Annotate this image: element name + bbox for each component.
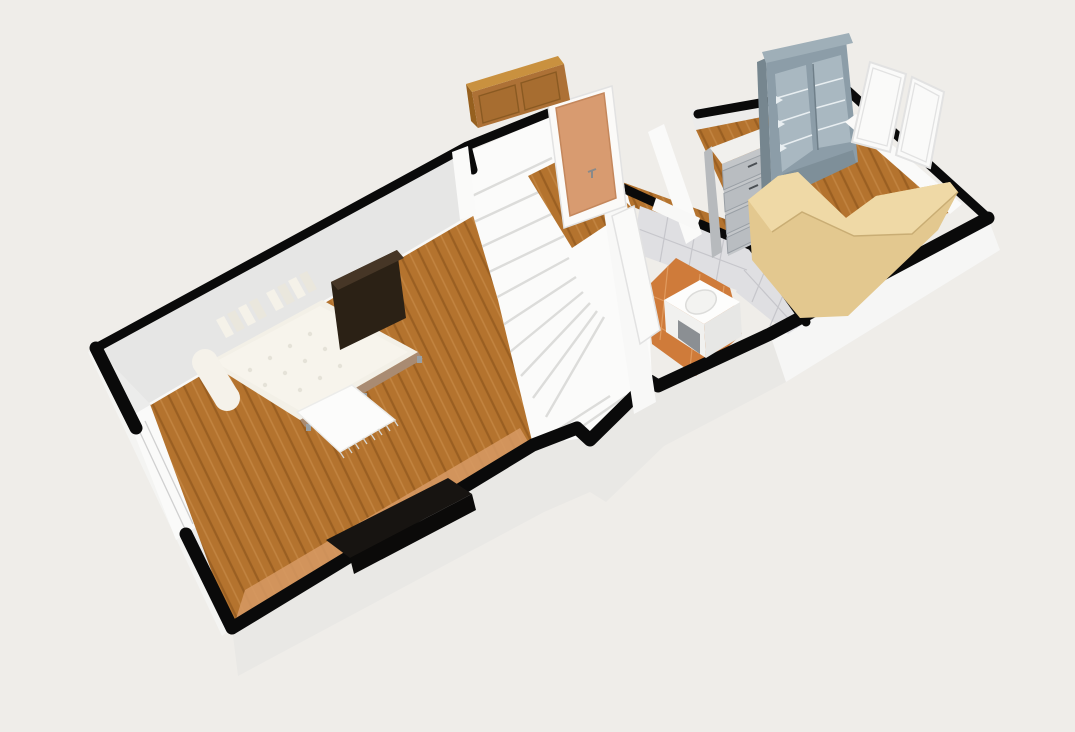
tuft-dot bbox=[288, 344, 292, 348]
tuft-dot bbox=[323, 347, 327, 351]
floorplan-3d-view bbox=[0, 0, 1075, 732]
tuft-dot bbox=[283, 371, 287, 375]
tuft-dot bbox=[308, 332, 312, 336]
tuft-dot bbox=[248, 368, 252, 372]
daybed-leg bbox=[417, 356, 422, 363]
tuft-dot bbox=[303, 359, 307, 363]
tuft-dot bbox=[298, 388, 302, 392]
tuft-dot bbox=[263, 383, 267, 387]
tuft-dot bbox=[268, 356, 272, 360]
tuft-dot bbox=[318, 376, 322, 380]
tuft-dot bbox=[338, 364, 342, 368]
